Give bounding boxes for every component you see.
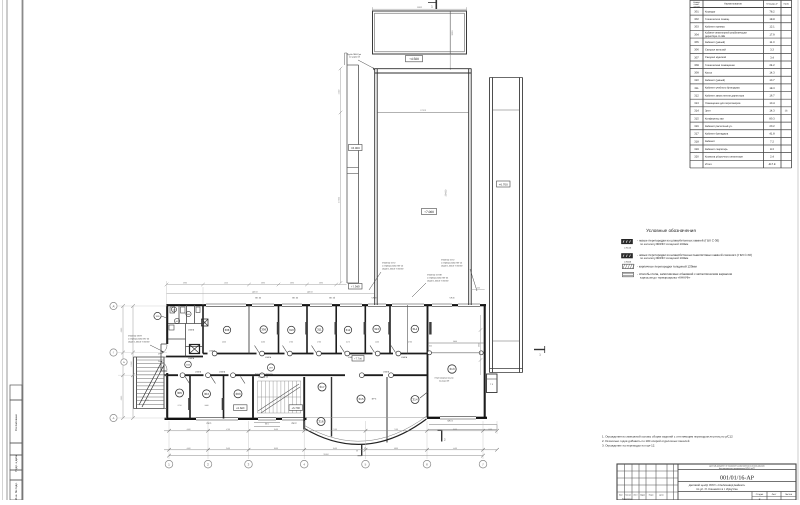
svg-text:417.8: 417.8: [769, 163, 776, 166]
svg-text:ОК 1: ОК 1: [206, 422, 212, 425]
svg-text:Наименование: Наименование: [724, 3, 743, 6]
svg-text:В 1: В 1: [265, 423, 269, 426]
svg-text:316: 316: [318, 420, 323, 424]
svg-text:304: 304: [694, 33, 699, 36]
svg-text:ВР-6: ВР-6: [372, 398, 377, 401]
svg-text:Переговорная башни: Переговорная башни: [435, 377, 454, 380]
svg-text:Комната уборочного инвентаря: Комната уборочного инвентаря: [705, 155, 743, 158]
svg-text:Кол.уч: Кол.уч: [625, 494, 631, 497]
svg-text:Техническая помещение: Техническая помещение: [705, 64, 735, 67]
svg-text:317: 317: [694, 133, 699, 136]
svg-text:17000: 17000: [420, 109, 427, 112]
svg-text:+5.680: +5.680: [236, 407, 245, 410]
svg-text:7100: 7100: [333, 428, 337, 431]
svg-text:2890: 2890: [290, 282, 294, 285]
svg-text:Лист: Лист: [633, 494, 637, 497]
svg-text:3400: 3400: [226, 447, 230, 450]
svg-text:Стадия: Стадия: [756, 493, 764, 496]
svg-text:с перекрытием ПО-12: с перекрытием ПО-12: [382, 265, 404, 268]
svg-text:5960: 5960: [477, 343, 480, 347]
svg-text:5600: 5600: [394, 447, 398, 450]
svg-text:3000: 3000: [451, 30, 454, 36]
svg-text:2890: 2890: [319, 282, 323, 285]
svg-text:с перекрытием ОС-42: с перекрытием ОС-42: [128, 338, 150, 341]
svg-text:ДК 10: ДК 10: [307, 291, 313, 294]
svg-text:29400: 29400: [445, 189, 448, 196]
svg-text:20.2: 20.2: [769, 125, 775, 128]
svg-text:17000: 17000: [337, 196, 340, 203]
svg-text:24.2: 24.2: [769, 64, 775, 67]
svg-text:Труба ПВХ∅до: Труба ПВХ∅до: [347, 53, 362, 56]
svg-text:Отметка СЛ-08: Отметка СЛ-08: [427, 274, 442, 277]
svg-text:309: 309: [694, 72, 699, 75]
svg-text:Подп: Подп: [649, 494, 654, 497]
svg-text:по укзрм 39: по укзрм 39: [439, 380, 449, 383]
svg-text:по каталогу ВНИИ толщиной 100м: по каталогу ВНИИ толщиной 100мм: [640, 256, 688, 260]
svg-text:№док: №док: [640, 494, 645, 497]
svg-text:4400: 4400: [337, 89, 340, 94]
svg-text:1.90ПВ: 1.90ПВ: [188, 328, 195, 331]
svg-text:Кабинет приема: Кабинет приема: [705, 26, 725, 29]
svg-text:1.90ПВ: 1.90ПВ: [219, 371, 226, 374]
svg-text:Санузел мужской: Санузел мужской: [705, 56, 727, 59]
svg-text:3.3: 3.3: [770, 49, 774, 52]
svg-text:1500: 1500: [488, 428, 492, 431]
svg-text:+8.000: +8.000: [351, 146, 360, 150]
svg-text:301: 301: [694, 10, 699, 13]
svg-text:Коридор: Коридор: [705, 10, 716, 13]
svg-text:16: 16: [785, 110, 788, 113]
svg-text:302: 302: [694, 18, 699, 21]
svg-text:314: 314: [412, 327, 417, 331]
svg-text:7100: 7100: [394, 428, 398, 431]
svg-text:297: 297: [269, 367, 273, 370]
svg-text:ОК 1б: ОК 1б: [329, 296, 336, 299]
svg-text:6000: 6000: [120, 395, 123, 400]
svg-text:1: 1: [539, 353, 541, 357]
svg-text:309: 309: [261, 328, 266, 332]
svg-text:7.2: 7.2: [770, 140, 774, 143]
svg-text:Кабинет бригадира: Кабинет бригадира: [705, 133, 729, 136]
svg-text:Кабинет учебного бригадира: Кабинет учебного бригадира: [705, 87, 740, 90]
svg-text:щения: щения: [693, 5, 700, 8]
svg-text:Жирокайная барьеры: Жирокайная барьеры: [255, 373, 274, 376]
svg-text:1.90ПВ: 1.90ПВ: [401, 356, 408, 359]
svg-text:6500: 6500: [453, 428, 457, 431]
svg-text:308: 308: [225, 328, 230, 332]
svg-text:ДК 10: ДК 10: [252, 291, 258, 294]
svg-text:Т 0: Т 0: [490, 383, 494, 386]
svg-text:1.90ПВ: 1.90ПВ: [265, 356, 272, 359]
svg-text:3.4: 3.4: [770, 56, 774, 59]
svg-text:ОК 10: ОК 10: [292, 296, 299, 299]
svg-text:18.8: 18.8: [769, 18, 775, 21]
svg-text:314: 314: [694, 110, 699, 113]
svg-text:41.8: 41.8: [769, 133, 775, 136]
svg-text:Кабинет секретарь: Кабинет секретарь: [705, 148, 728, 151]
svg-text:320: 320: [694, 156, 699, 159]
svg-text:ОК 8: ОК 8: [450, 296, 456, 299]
svg-text:директора со ЖБ: директора со ЖБ: [705, 35, 725, 38]
svg-text:Д: Д: [113, 305, 115, 308]
svg-text:1.90ПВ: 1.90ПВ: [188, 357, 195, 360]
svg-text:Касса: Касса: [705, 71, 713, 74]
svg-text:1500: 1500: [476, 287, 480, 290]
svg-text:Площадь,м²: Площадь,м²: [766, 3, 778, 6]
svg-text:3. Ограждение на переводах по: 3. Ограждение на переводах по кал-12.: [602, 443, 655, 447]
svg-text:14.3: 14.3: [769, 72, 775, 75]
svg-text:4020: 4020: [224, 282, 228, 285]
svg-text:Отметка СЛ-2: Отметка СЛ-2: [382, 262, 396, 265]
svg-text:303: 303: [235, 392, 240, 396]
svg-text:Кабинет (умный): Кабинет (умный): [705, 41, 725, 44]
svg-text:Итого: Итого: [705, 163, 712, 166]
svg-text:2890: 2890: [261, 282, 265, 285]
svg-text:317: 317: [319, 385, 324, 389]
svg-text:ОК 9: ОК 9: [372, 296, 378, 299]
svg-text:6400: 6400: [274, 428, 278, 431]
svg-text:+4.500: +4.500: [409, 57, 419, 61]
svg-text:312: 312: [694, 94, 699, 97]
svg-text:4500: 4500: [186, 447, 190, 450]
svg-text:ОК 3: ОК 3: [447, 420, 453, 423]
svg-text:Зрит: Зрит: [705, 110, 711, 113]
svg-text:2980: 2980: [183, 282, 187, 285]
svg-text:Кабинет: Кабинет: [705, 140, 716, 143]
svg-text:305: 305: [694, 41, 699, 44]
svg-text:3780: 3780: [408, 341, 412, 344]
svg-text:303: 303: [694, 26, 699, 29]
svg-text:900: 900: [429, 345, 432, 348]
svg-text:1 ЖБ1В: 1 ЖБ1В: [624, 246, 632, 249]
svg-text:4700: 4700: [226, 428, 230, 431]
svg-text:А: А: [113, 417, 115, 420]
svg-text:306: 306: [187, 313, 190, 316]
svg-text:+7.700: +7.700: [354, 357, 362, 360]
svg-text:12.1: 12.1: [769, 26, 775, 29]
svg-text:каркасом до терморазрыва «КНАУ: каркасом до терморазрыва «КНАУФ»: [640, 275, 691, 279]
svg-text:Отметка СВ-Н: Отметка СВ-Н: [128, 335, 142, 338]
svg-text:307: 307: [176, 320, 179, 323]
svg-text:3280: 3280: [261, 341, 265, 344]
svg-text:4400: 4400: [453, 447, 457, 450]
svg-text:314: 314: [412, 398, 417, 402]
svg-text:78.2: 78.2: [769, 10, 775, 13]
svg-text:14.3: 14.3: [769, 110, 775, 113]
svg-text:18.3: 18.3: [769, 87, 775, 90]
svg-text:313: 313: [694, 102, 699, 105]
svg-text:серия 1.450.3-7.94 БО: серия 1.450.3-7.94 БО: [427, 280, 449, 283]
svg-text:11.3: 11.3: [769, 41, 775, 44]
svg-text:1500: 1500: [145, 399, 149, 402]
svg-text:по ул. О. Кошевого в г. Иркутс: по ул. О. Кошевого в г. Иркутске: [696, 487, 738, 491]
svg-text:ОК 2: ОК 2: [291, 422, 297, 425]
svg-text:Техническое помещ.: Техническое помещ.: [705, 18, 730, 21]
svg-text:310: 310: [289, 328, 294, 332]
svg-text:306: 306: [694, 49, 699, 52]
svg-text:2780: 2780: [289, 341, 293, 344]
svg-text:2780: 2780: [317, 341, 321, 344]
svg-text:39300: 39300: [323, 453, 328, 456]
svg-text:310: 310: [694, 79, 699, 82]
svg-text:2.4: 2.4: [770, 156, 774, 159]
svg-text:Изм: Изм: [619, 494, 623, 497]
svg-text:6500: 6500: [274, 447, 278, 450]
svg-text:на улицу 39: на улицу 39: [258, 375, 268, 378]
svg-text:12240: 12240: [130, 360, 133, 366]
svg-text:Кабинет заместителя директора: Кабинет заместителя директора: [705, 94, 745, 97]
svg-text:2. Несколько годов добавить по: 2. Несколько годов добавить по 180 опоро…: [602, 439, 690, 443]
svg-text:9300: 9300: [417, 6, 423, 9]
svg-text:Кабинет (умный): Кабинет (умный): [705, 79, 725, 82]
svg-text:2: 2: [444, 438, 446, 442]
svg-text:без письменного разрешения ООО: без письменного разрешения ООО ЧАСТ: [719, 467, 756, 470]
svg-text:312: 312: [346, 328, 351, 332]
svg-text:318: 318: [186, 364, 190, 367]
svg-text:+7.000: +7.000: [424, 210, 434, 214]
svg-text:по укзрм 08: по укзрм 08: [349, 56, 361, 59]
svg-text:6000: 6000: [120, 327, 123, 332]
svg-text:311: 311: [317, 328, 322, 332]
svg-text:17.9: 17.9: [769, 33, 775, 36]
svg-text:+6.700: +6.700: [499, 182, 508, 186]
svg-text:320: 320: [173, 309, 176, 312]
svg-text:1.90ПВ: 1.90ПВ: [195, 371, 202, 374]
svg-text:315: 315: [694, 117, 699, 120]
svg-text:серия 1.450.3-7.94 БО: серия 1.450.3-7.94 БО: [382, 268, 404, 271]
svg-text:2880: 2880: [205, 404, 209, 407]
svg-text:+5.700: +5.700: [292, 407, 301, 410]
svg-text:311: 311: [694, 87, 699, 90]
svg-text:Кабинет расчетный уч.: Кабинет расчетный уч.: [705, 125, 733, 128]
svg-text:Прим: Прим: [784, 3, 790, 6]
svg-text:318: 318: [694, 140, 699, 143]
svg-text:305: 305: [177, 391, 182, 395]
svg-text:Отметка СЛ-2: Отметка СЛ-2: [441, 259, 455, 262]
svg-text:Дата: Дата: [659, 494, 664, 497]
svg-text:- кирпичные перегородки толщин: - кирпичные перегородки толщиной 120мм: [637, 265, 697, 269]
svg-text:319: 319: [694, 148, 699, 151]
svg-text:+7.040: +7.040: [351, 284, 360, 288]
svg-text:Конференц-зал: Конференц-зал: [705, 117, 724, 120]
svg-text:ОК 10: ОК 10: [255, 296, 262, 299]
svg-text:1.90ПВ: 1.90ПВ: [383, 371, 390, 374]
svg-text:серия 1.463.3-7.94 БО: серия 1.463.3-7.94 БО: [128, 341, 150, 344]
svg-text:Согласовано: Согласовано: [14, 414, 18, 431]
svg-text:001/01/16-АР: 001/01/16-АР: [720, 476, 755, 482]
svg-text:Условные обозначения: Условные обозначения: [646, 228, 696, 233]
svg-text:313: 313: [449, 367, 454, 371]
svg-text:307: 307: [694, 56, 699, 59]
svg-text:308: 308: [694, 64, 699, 67]
svg-text:4500: 4500: [186, 428, 190, 431]
svg-text:80.3: 80.3: [769, 117, 775, 120]
svg-text:Подп. и дата: Подп. и дата: [14, 455, 18, 472]
svg-text:304: 304: [204, 392, 209, 396]
svg-text:3175: 3175: [346, 341, 350, 344]
svg-text:1: 1: [431, 4, 433, 8]
svg-text:313: 313: [374, 327, 379, 331]
svg-text:2400: 2400: [375, 341, 379, 344]
svg-text:серия 1.450.3-7.94 БО: серия 1.450.3-7.94 БО: [441, 265, 463, 268]
svg-text:с перекрытием ПО-14: с перекрытием ПО-14: [441, 262, 463, 265]
svg-text:316: 316: [694, 125, 699, 128]
svg-text:1 ЖБ5В: 1 ЖБ5В: [624, 261, 632, 264]
svg-text:16.7: 16.7: [769, 94, 775, 97]
svg-text:Листов: Листов: [785, 493, 793, 496]
svg-text:Помещение для переговоров: Помещение для переговоров: [705, 102, 741, 105]
svg-text:1. Ограждения из экипажной осн: 1. Ограждения из экипажной основы сборки…: [602, 434, 733, 438]
svg-text:Лист: Лист: [772, 493, 777, 496]
svg-text:315: 315: [358, 397, 363, 401]
svg-text:5960: 5960: [453, 340, 457, 343]
svg-text:9400: 9400: [333, 447, 337, 450]
svg-text:2710: 2710: [178, 404, 182, 407]
svg-text:Инв. № подл.: Инв. № подл.: [14, 482, 18, 500]
svg-text:8.3: 8.3: [770, 148, 774, 151]
svg-text:Санузел женский: Санузел женский: [705, 49, 726, 52]
svg-text:13.7: 13.7: [769, 79, 775, 82]
svg-text:по каталогу ВНИИ толщиной 100м: по каталогу ВНИИ толщиной 100мм: [640, 242, 688, 246]
svg-text:4660: 4660: [222, 341, 226, 344]
svg-text:13.4: 13.4: [769, 102, 775, 105]
svg-text:с перекрытием ПО-24: с перекрытием ПО-24: [427, 277, 449, 280]
svg-text:319: 319: [156, 315, 160, 318]
